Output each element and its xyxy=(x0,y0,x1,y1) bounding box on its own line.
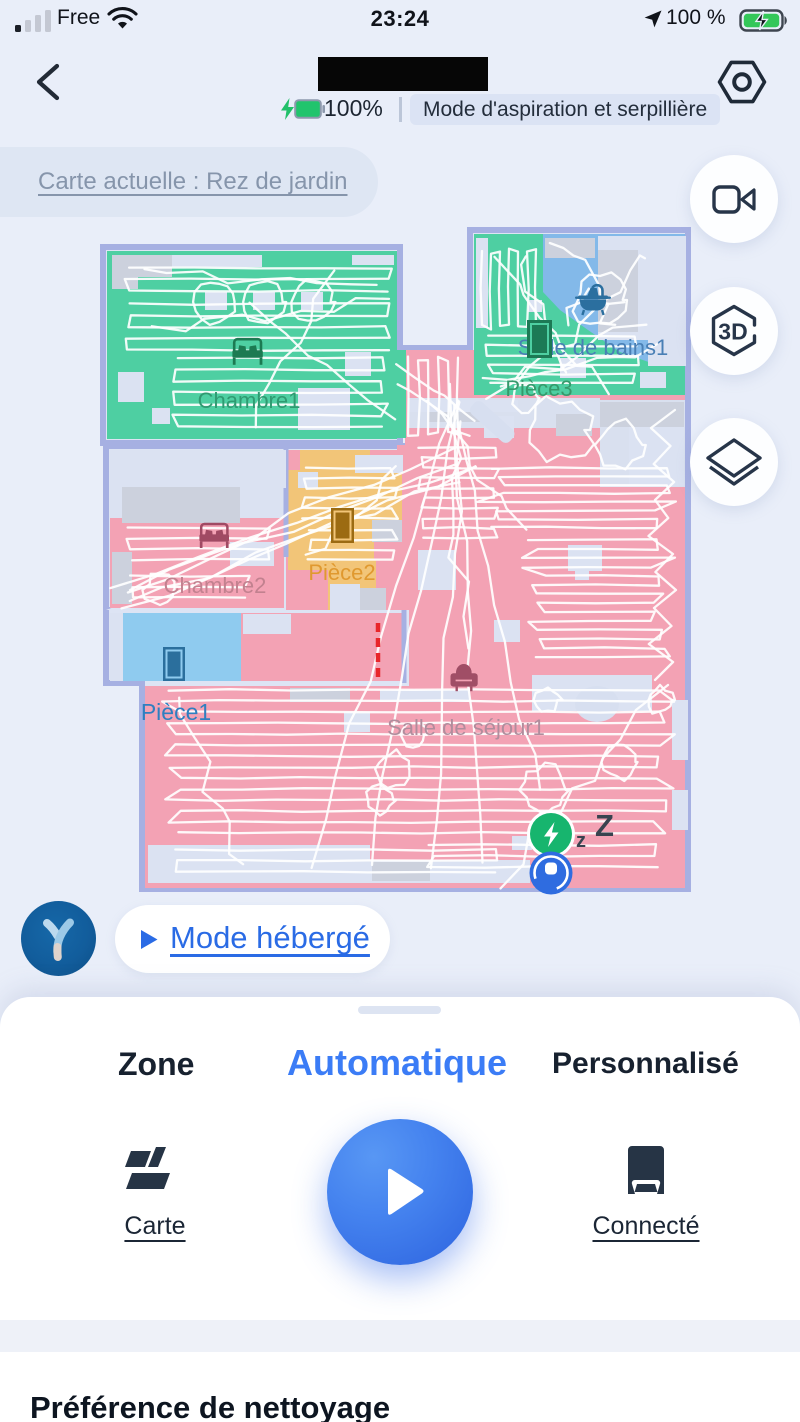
svg-text:Salle de séjour1: Salle de séjour1 xyxy=(387,715,545,740)
svg-text:Pièce2: Pièce2 xyxy=(308,560,375,585)
svg-text:Z: Z xyxy=(595,808,614,843)
svg-text:3D: 3D xyxy=(718,319,747,345)
svg-text:z: z xyxy=(576,830,586,852)
svg-text:Chambre1: Chambre1 xyxy=(198,388,301,413)
svg-text:Chambre2: Chambre2 xyxy=(164,573,267,598)
svg-text:Pièce1: Pièce1 xyxy=(141,699,211,725)
svg-text:Pièce3: Pièce3 xyxy=(505,376,572,401)
